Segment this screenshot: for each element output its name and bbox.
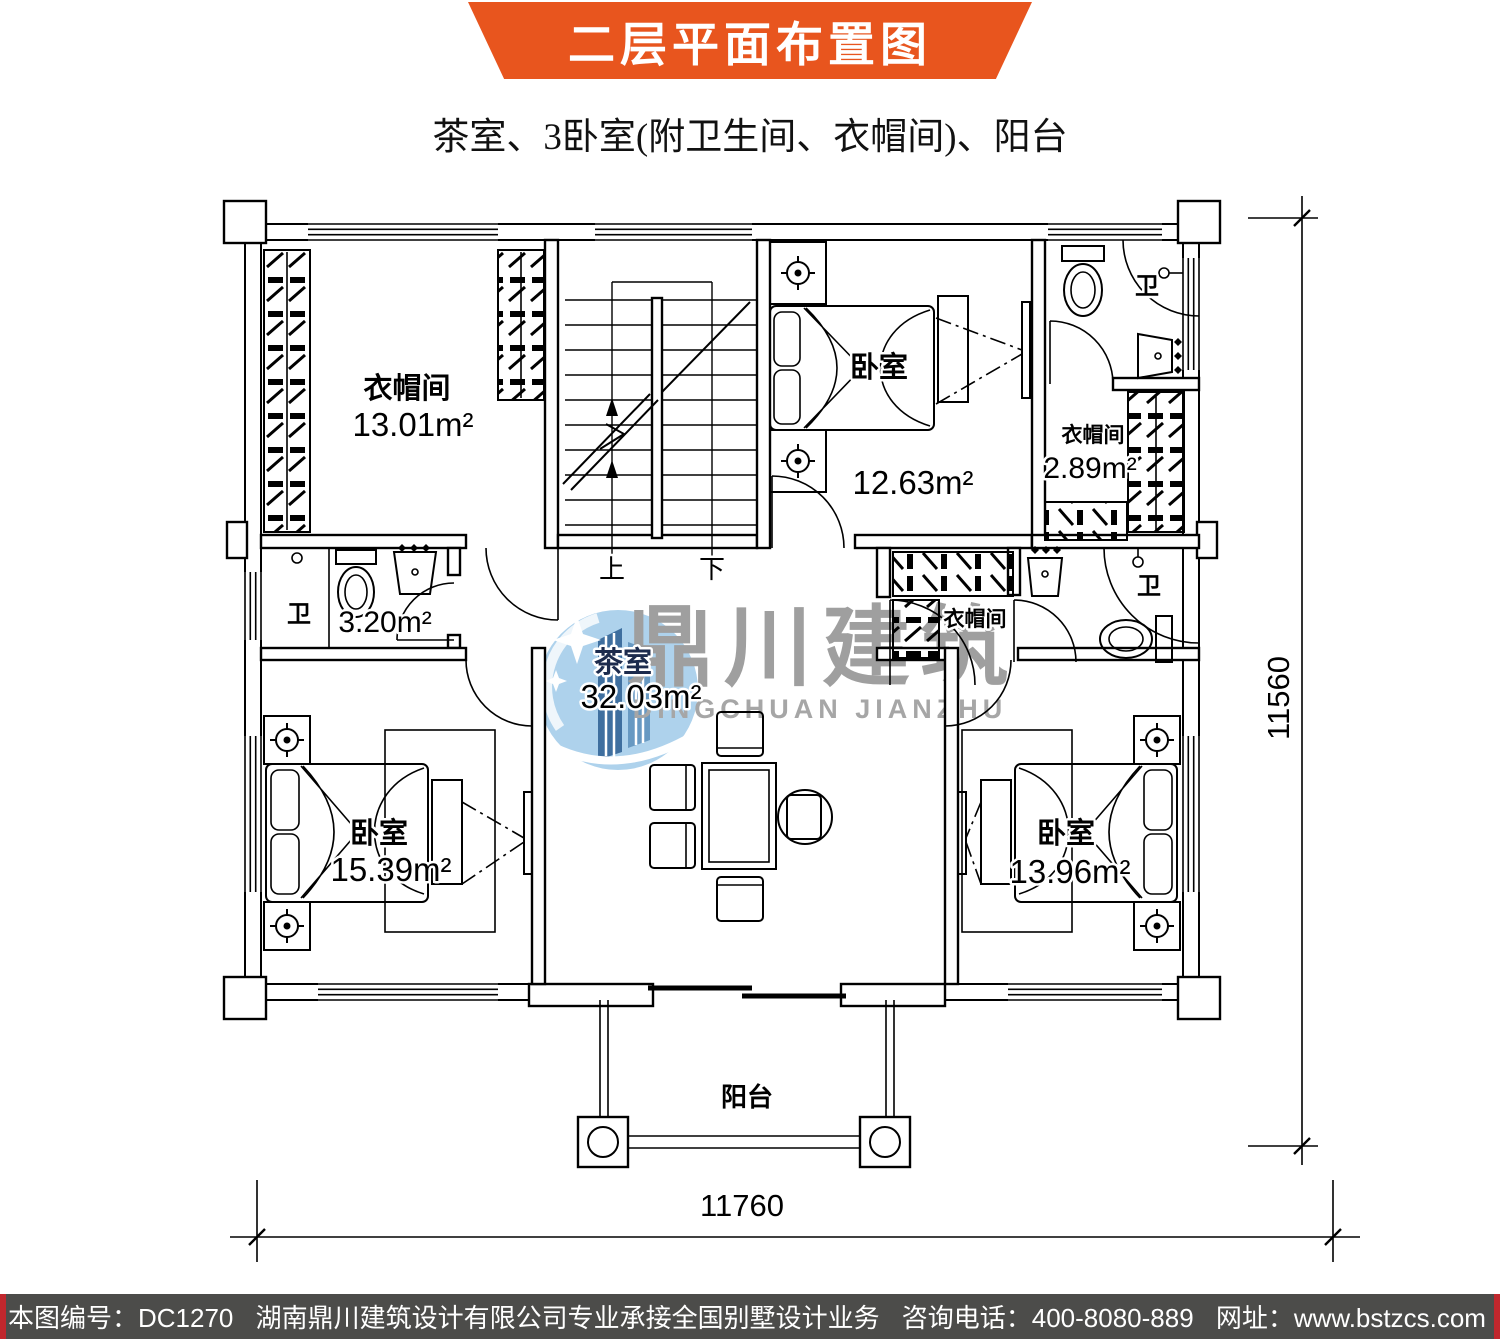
bathroom-left-area: 3.20m² bbox=[338, 606, 431, 639]
dimension-height: 11560 bbox=[1261, 656, 1296, 740]
bathroom-right bbox=[1028, 546, 1199, 662]
bathroom-left-label: 卫 bbox=[287, 601, 311, 628]
bathroom-top-right bbox=[1062, 240, 1199, 378]
bedroom-bottom-right-area: 13.96m² bbox=[1009, 853, 1130, 890]
bedroom-top-right-label: 卧室 bbox=[850, 350, 908, 384]
stairs-down-label: 下 bbox=[699, 554, 725, 584]
footer-drawing-number: 本图编号：DC1270 bbox=[8, 1298, 233, 1335]
balcony bbox=[578, 988, 910, 1167]
floor-plan-svg: 鼎川建筑 DINGCHUAN JIANZHU bbox=[0, 0, 1500, 1339]
footer-bar: 本图编号：DC1270 湖南鼎川建筑设计有限公司专业承接全国别墅设计业务 咨询电… bbox=[0, 1294, 1500, 1339]
cloakroom-right-area: 2.89m² bbox=[1043, 452, 1136, 485]
tea-room-area: 32.03m² bbox=[580, 678, 701, 715]
footer-website: 网址：www.bstzcs.com bbox=[1216, 1298, 1486, 1335]
bathroom-right-label: 卫 bbox=[1137, 573, 1161, 600]
cloakroom-top-left-area: 13.01m² bbox=[352, 406, 473, 443]
footer-company: 湖南鼎川建筑设计有限公司专业承接全国别墅设计业务 bbox=[256, 1298, 880, 1335]
dimension-width: 11760 bbox=[700, 1188, 784, 1223]
cloakroom-top-left-label: 衣帽间 bbox=[363, 372, 450, 405]
stairs-up-label: 上 bbox=[599, 554, 625, 584]
bedroom-bottom-left-label: 卧室 bbox=[350, 816, 408, 850]
balcony-label: 阳台 bbox=[721, 1082, 773, 1112]
tea-room-label: 茶室 bbox=[594, 645, 652, 679]
bedroom-bottom-left-area: 15.39m² bbox=[330, 851, 451, 888]
footer-accent-left bbox=[0, 1294, 6, 1339]
footer-phone: 咨询电话：400-8080-889 bbox=[902, 1298, 1194, 1335]
cloakroom-middle-label: 衣帽间 bbox=[944, 607, 1007, 631]
bathroom-top-right-label: 卫 bbox=[1135, 273, 1159, 300]
footer-accent-right bbox=[1494, 1294, 1500, 1339]
bedroom-bottom-right-label: 卧室 bbox=[1037, 816, 1095, 850]
bedroom-top-right-area: 12.63m² bbox=[852, 464, 973, 501]
cloakroom-right-label: 衣帽间 bbox=[1062, 423, 1125, 447]
